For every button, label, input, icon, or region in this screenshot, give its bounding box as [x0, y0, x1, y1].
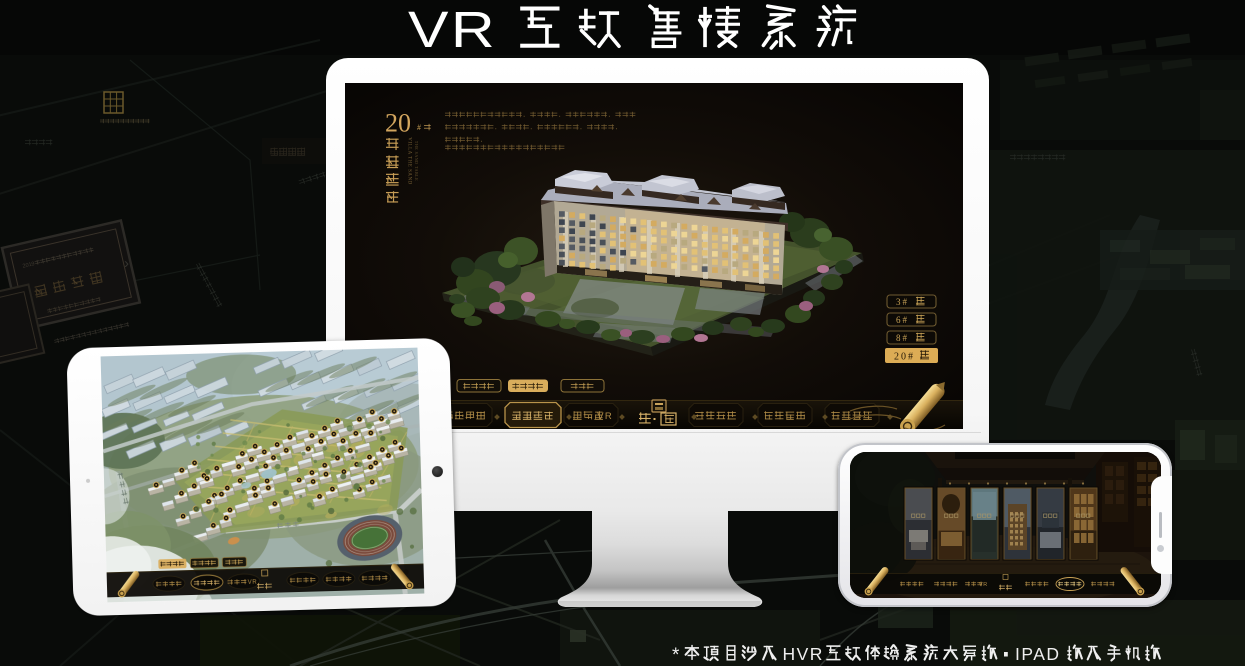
svg-text:8#: 8#	[896, 333, 909, 343]
svg-text:VILLA THE SAND: VILLA THE SAND	[407, 137, 412, 184]
svg-text:IPAD: IPAD	[1015, 644, 1061, 664]
svg-text:6#: 6#	[896, 315, 909, 325]
svg-text:THE SAND TABLE: THE SAND TABLE	[414, 141, 419, 181]
svg-text:›: ›	[124, 255, 129, 272]
svg-text:VR: VR	[408, 1, 497, 58]
svg-text:*: *	[672, 645, 680, 666]
svg-text:VR: VR	[979, 582, 988, 588]
svg-text:#: #	[417, 123, 421, 132]
svg-text:VR: VR	[597, 411, 613, 422]
svg-text:20#: 20#	[894, 352, 915, 363]
svg-text:VR: VR	[248, 580, 258, 586]
svg-text:HVR: HVR	[783, 644, 824, 664]
svg-text:20: 20	[385, 109, 411, 138]
svg-text:3#: 3#	[896, 297, 909, 307]
